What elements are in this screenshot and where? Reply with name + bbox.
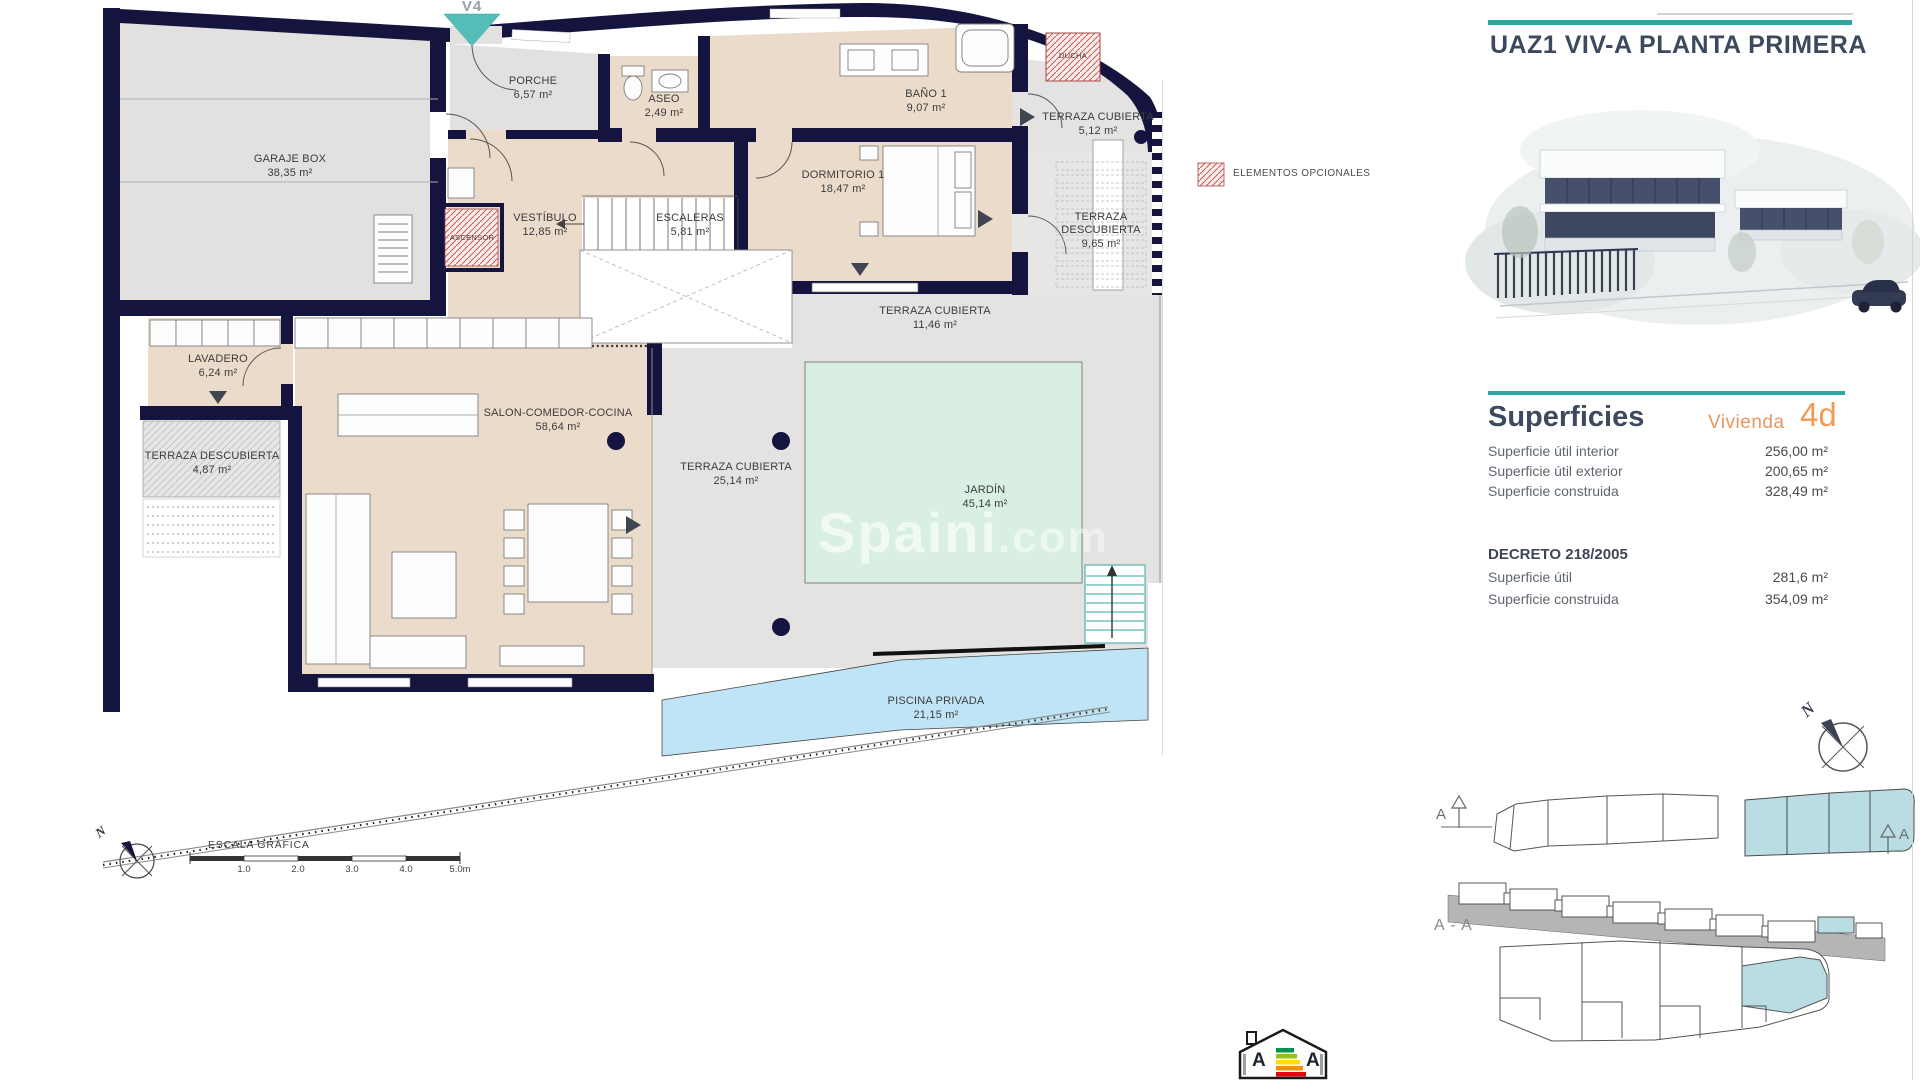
room-label: GARAJE BOX38,35 m² (225, 153, 355, 180)
floorplan-page: V4 GARAJE BOX38,35 m²PORCHE6,57 m²ASEO2,… (0, 0, 1920, 1080)
superficies-heading: Superficies (1488, 401, 1644, 434)
plan-compass-icon (120, 841, 154, 878)
room-label: SALON-COMEDOR-COCINA58,64 m² (438, 407, 678, 434)
scale-bar-title: ESCALA GRÁFICA (208, 839, 310, 851)
energy-rating-letter: A (1306, 1050, 1320, 1072)
panel-divider-right (1912, 0, 1913, 1080)
room-label: ASCENSOR (437, 233, 507, 242)
site-plan-bottom (1500, 941, 1829, 1041)
v4-window-label: V4 (448, 0, 496, 15)
room-label: BAÑO 19,07 m² (881, 88, 971, 115)
scale-tick-label: 4.0 (399, 864, 412, 875)
site-plan-row (1441, 789, 1914, 856)
section-marker-left: A (1436, 806, 1446, 823)
surface-row: Superficie construida328,49 m² (1488, 483, 1828, 503)
title-divider-teal (1488, 20, 1852, 25)
section-marker-right: A (1899, 826, 1909, 843)
watermark-main: Spaini (818, 501, 998, 564)
room-label: TERRAZA DESCUBIERTA9,65 m² (1045, 211, 1157, 252)
surface-row: Superficie útil281,6 m² (1488, 569, 1828, 591)
scale-bar (190, 852, 460, 864)
superficies-divider (1488, 391, 1845, 395)
room-label: LAVADERO6,24 m² (163, 353, 273, 380)
section-label: A - A (1434, 917, 1473, 935)
optional-elements-legend-label: ELEMENTOS OPCIONALES (1233, 168, 1370, 179)
room-label: TERRAZA DESCUBIERTA4,87 m² (145, 450, 280, 477)
site-compass-icon (1819, 719, 1867, 771)
room-label: ASEO2,49 m² (624, 93, 704, 120)
watermark: Spaini.com (818, 500, 1109, 565)
room-label: ESCALERAS5,81 m² (635, 212, 745, 239)
surface-row: Superficie útil exterior200,65 m² (1488, 463, 1828, 483)
room-label: DORMITORIO 118,47 m² (773, 169, 913, 196)
page-title: UAZ1 VIV-A PLANTA PRIMERA (1490, 31, 1862, 60)
scale-tick-label: 2.0 (291, 864, 304, 875)
room-label: TERRAZA CUBIERTA11,46 m² (840, 305, 1030, 332)
decreto-heading: DECRETO 218/2005 (1488, 546, 1628, 563)
room-label: DUCHA (1043, 51, 1103, 60)
room-label: PISCINA PRIVADA21,15 m² (851, 695, 1021, 722)
room-label: TERRAZA CUBIERTA25,14 m² (646, 461, 826, 488)
panel-divider-left (1162, 80, 1163, 756)
scale-tick-label: 1.0 (237, 864, 250, 875)
vivienda-value: 4d (1800, 396, 1837, 434)
title-divider-gray (1657, 13, 1853, 15)
vivienda-label: Vivienda (1708, 412, 1785, 434)
scale-tick-label: 3.0 (345, 864, 358, 875)
watermark-suffix: .com (998, 513, 1109, 562)
room-label: TERRAZA CUBIERTA5,12 m² (1013, 111, 1183, 138)
energy-rating-letter: A (1252, 1050, 1266, 1072)
villa-photo (1465, 110, 1920, 325)
room-label: PORCHE6,57 m² (483, 75, 583, 102)
decreto-rows: Superficie útil281,6 m²Superficie constr… (1488, 569, 1828, 613)
superficies-rows: Superficie útil interior256,00 m²Superfi… (1488, 443, 1828, 503)
scale-tick-label: 5.0m (449, 864, 470, 875)
surface-row: Superficie construida354,09 m² (1488, 591, 1828, 613)
surface-row: Superficie útil interior256,00 m² (1488, 443, 1828, 463)
